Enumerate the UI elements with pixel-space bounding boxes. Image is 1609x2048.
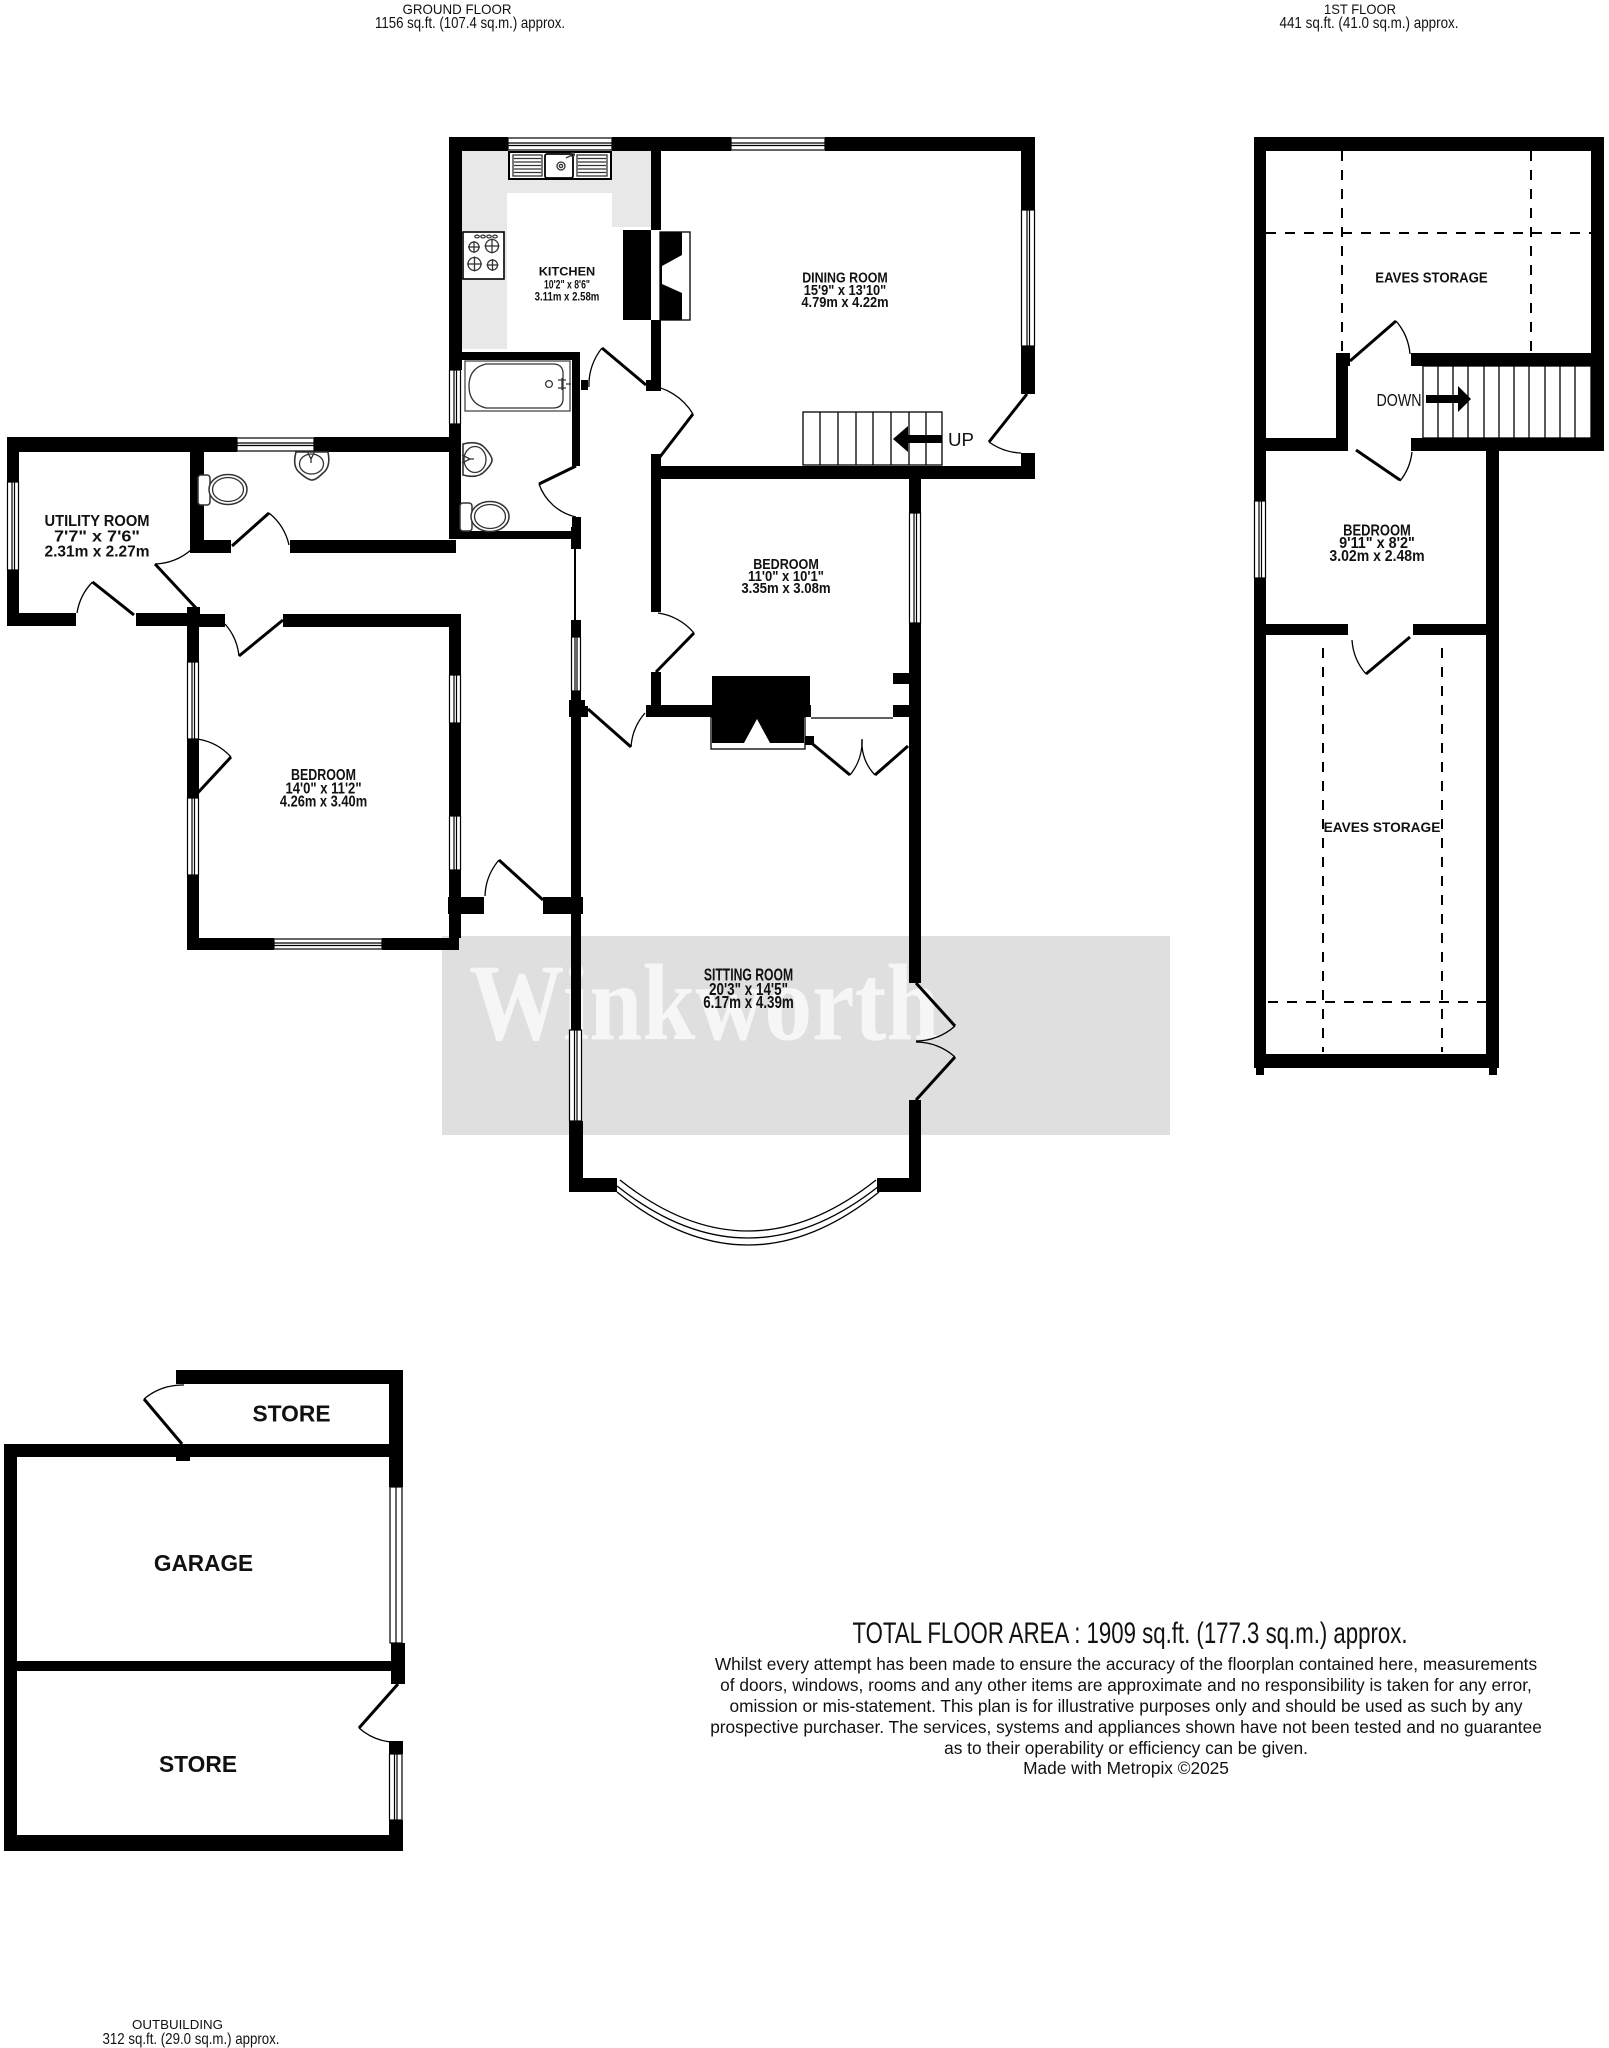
svg-text:STORE: STORE [159,1751,237,1777]
svg-text:3.02m x 2.48m: 3.02m x 2.48m [1329,548,1424,565]
svg-text:4.26m x 3.40m: 4.26m x 3.40m [280,794,367,811]
svg-text:DOWN: DOWN [1377,390,1422,410]
svg-text:STORE: STORE [253,1400,331,1426]
svg-text:EAVES STORAGE: EAVES STORAGE [1324,820,1441,836]
svg-text:prospective purchaser. The ser: prospective purchaser. The services, sys… [710,1717,1542,1737]
svg-text:3.35m x 3.08m: 3.35m x 3.08m [741,581,830,597]
svg-text:1156 sq.ft. (107.4 sq.m.) appr: 1156 sq.ft. (107.4 sq.m.) approx. [375,14,565,32]
svg-text:TOTAL FLOOR AREA : 1909 sq.ft.: TOTAL FLOOR AREA : 1909 sq.ft. (177.3 sq… [853,1617,1408,1650]
svg-text:3.11m x 2.58m: 3.11m x 2.58m [535,290,600,304]
svg-text:6.17m x 4.39m: 6.17m x 4.39m [703,992,794,1012]
svg-text:omission or mis-statement. Thi: omission or mis-statement. This plan is … [729,1696,1522,1716]
svg-text:KITCHEN: KITCHEN [539,265,596,279]
svg-text:441 sq.ft. (41.0 sq.m.) approx: 441 sq.ft. (41.0 sq.m.) approx. [1280,14,1459,32]
svg-text:EAVES STORAGE: EAVES STORAGE [1375,271,1488,287]
svg-text:Made with Metropix ©2025: Made with Metropix ©2025 [1023,1758,1229,1778]
svg-text:of doors, windows, rooms and a: of doors, windows, rooms and any other i… [720,1675,1532,1695]
svg-text:as to their operability or eff: as to their operability or efficiency ca… [944,1738,1308,1758]
svg-text:UP: UP [948,429,974,450]
svg-text:2.31m x 2.27m: 2.31m x 2.27m [45,544,150,561]
svg-text:4.79m x 4.22m: 4.79m x 4.22m [801,294,888,311]
svg-text:UTILITY ROOM: UTILITY ROOM [45,513,150,530]
svg-text:GARAGE: GARAGE [154,1550,253,1576]
svg-text:312 sq.ft. (29.0 sq.m.) approx: 312 sq.ft. (29.0 sq.m.) approx. [103,2030,280,2048]
svg-text:Whilst every attempt has been: Whilst every attempt has been made to en… [715,1654,1538,1674]
